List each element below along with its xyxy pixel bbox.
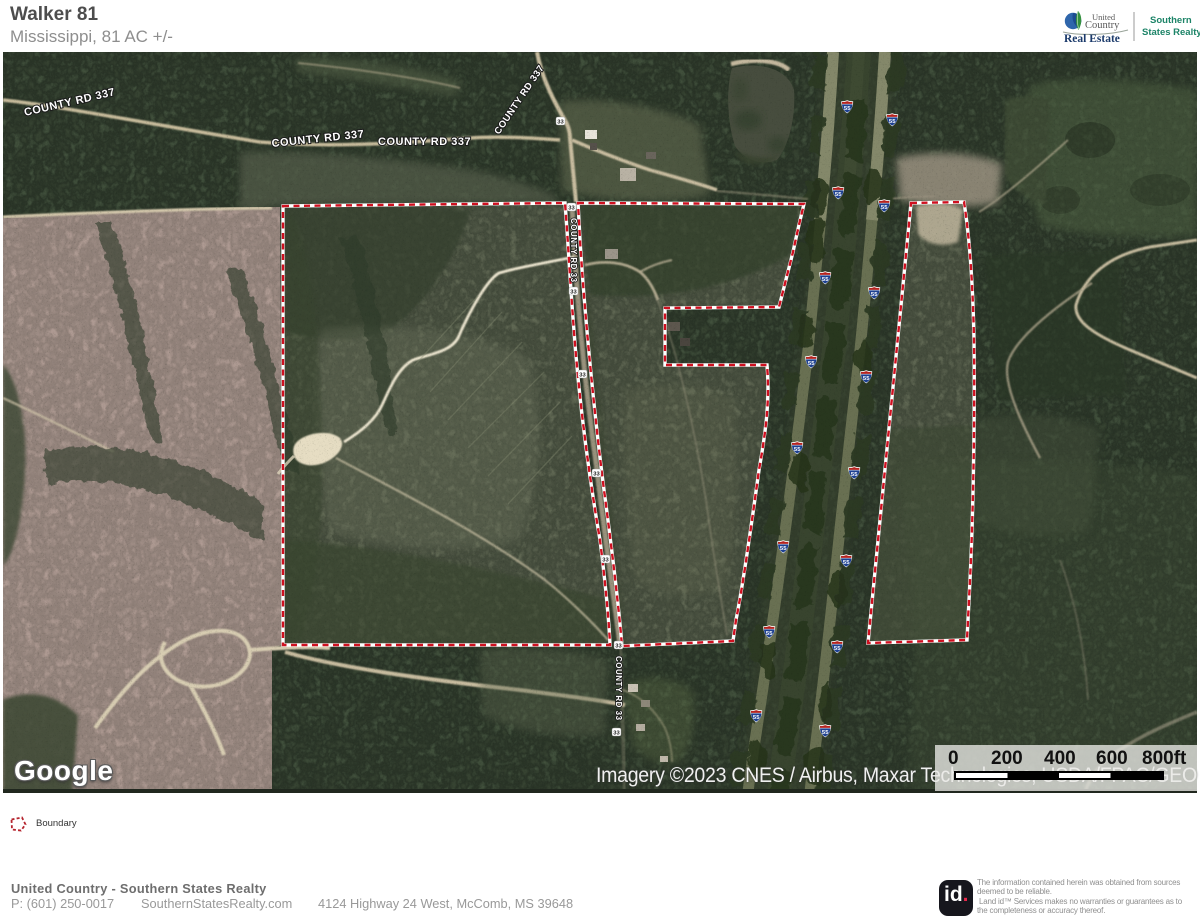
svg-text:Southern: Southern [1150,15,1192,26]
svg-text:COUNTY RD 337: COUNTY RD 337 [378,136,471,148]
svg-text:Real Estate: Real Estate [1064,33,1120,45]
svg-text:States Realty: States Realty [1142,27,1200,38]
svg-text:Country: Country [1085,20,1120,31]
svg-text:COUNTY RD 33: COUNTY RD 33 [569,218,578,283]
svg-text:COUNTY RD 33: COUNTY RD 33 [614,656,623,721]
